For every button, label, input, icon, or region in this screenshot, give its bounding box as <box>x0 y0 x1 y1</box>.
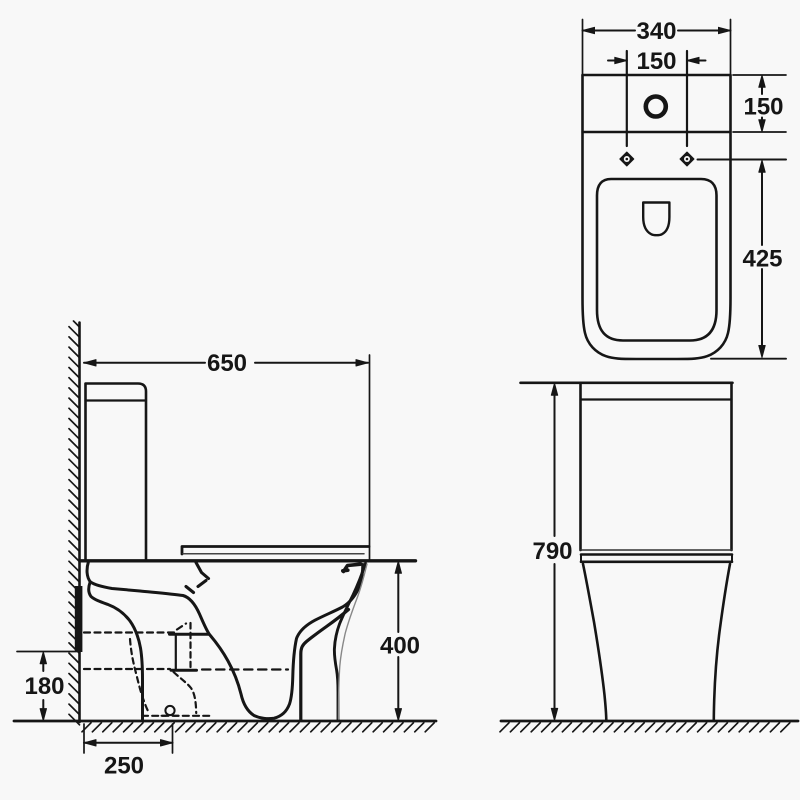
svg-text:400: 400 <box>380 633 420 660</box>
svg-text:650: 650 <box>207 350 247 377</box>
svg-text:150: 150 <box>636 48 676 75</box>
svg-text:150: 150 <box>743 94 783 121</box>
svg-text:250: 250 <box>104 753 144 780</box>
svg-text:790: 790 <box>532 538 572 565</box>
svg-text:180: 180 <box>24 673 64 700</box>
svg-text:425: 425 <box>742 246 782 273</box>
svg-text:340: 340 <box>636 18 676 45</box>
